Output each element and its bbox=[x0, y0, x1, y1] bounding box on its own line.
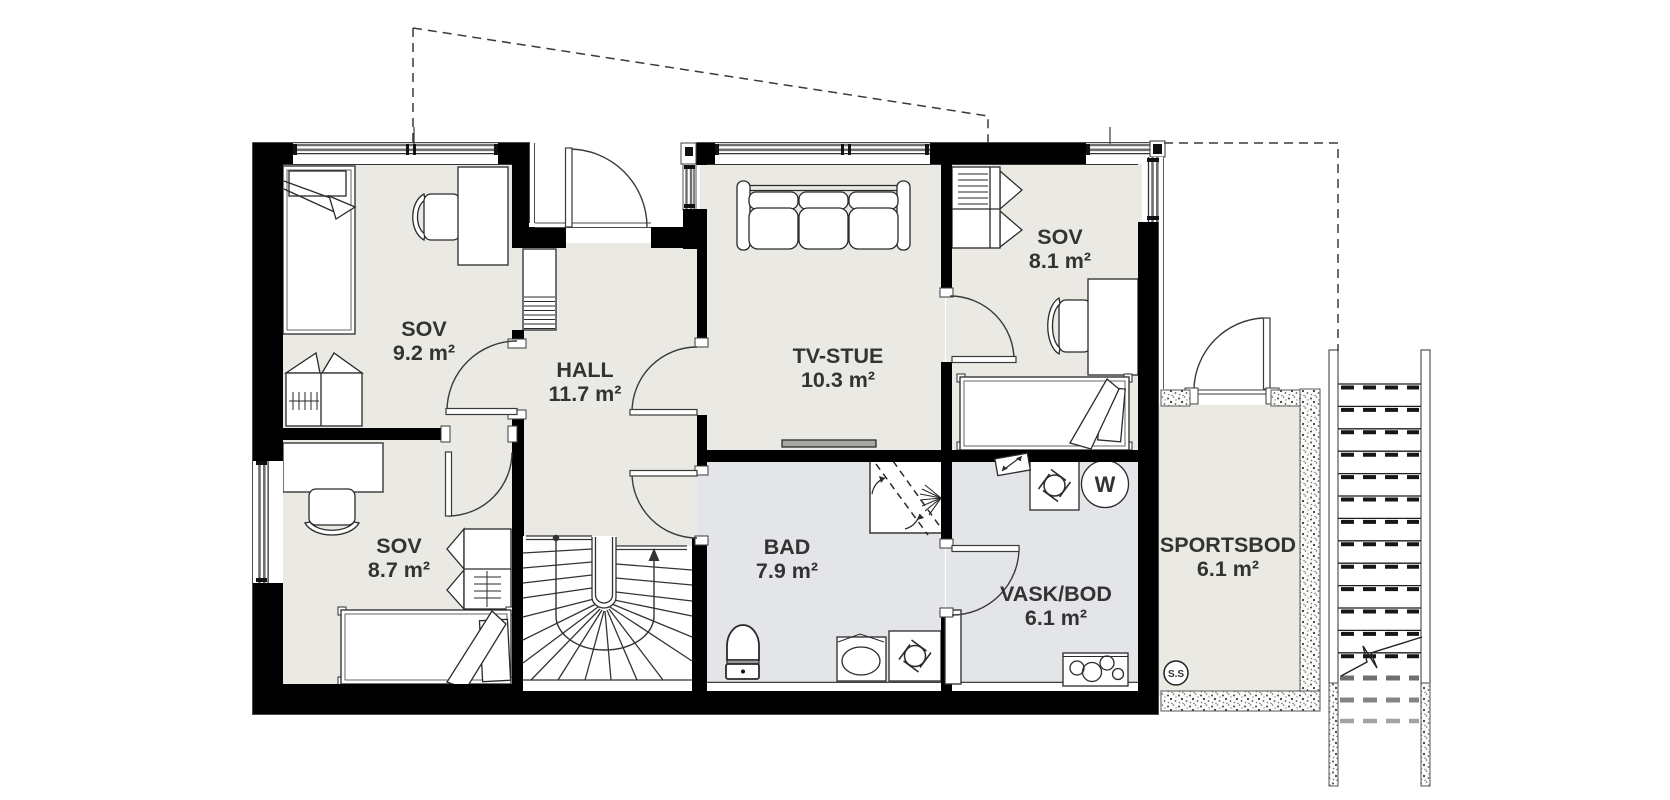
svg-text:W: W bbox=[1095, 472, 1116, 497]
svg-text:7.9 m²: 7.9 m² bbox=[756, 559, 818, 583]
svg-text:SPORTSBOD: SPORTSBOD bbox=[1160, 533, 1296, 557]
svg-text:6.1 m²: 6.1 m² bbox=[1197, 557, 1259, 581]
svg-text:HALL: HALL bbox=[556, 358, 613, 382]
svg-text:8.1 m²: 8.1 m² bbox=[1029, 249, 1091, 273]
svg-text:SOV: SOV bbox=[376, 534, 422, 558]
svg-text:11.7 m²: 11.7 m² bbox=[549, 382, 622, 406]
svg-text:TV-STUE: TV-STUE bbox=[793, 344, 884, 368]
svg-text:SOV: SOV bbox=[1037, 225, 1083, 249]
svg-text:8.7 m²: 8.7 m² bbox=[368, 558, 430, 582]
svg-text:S.S: S.S bbox=[1168, 669, 1184, 680]
svg-text:SOV: SOV bbox=[401, 317, 447, 341]
svg-text:9.2 m²: 9.2 m² bbox=[393, 341, 455, 365]
svg-text:BAD: BAD bbox=[764, 535, 811, 559]
svg-text:10.3 m²: 10.3 m² bbox=[801, 368, 875, 392]
svg-text:VASK/BOD: VASK/BOD bbox=[1000, 582, 1112, 606]
svg-text:6.1 m²: 6.1 m² bbox=[1025, 606, 1087, 630]
